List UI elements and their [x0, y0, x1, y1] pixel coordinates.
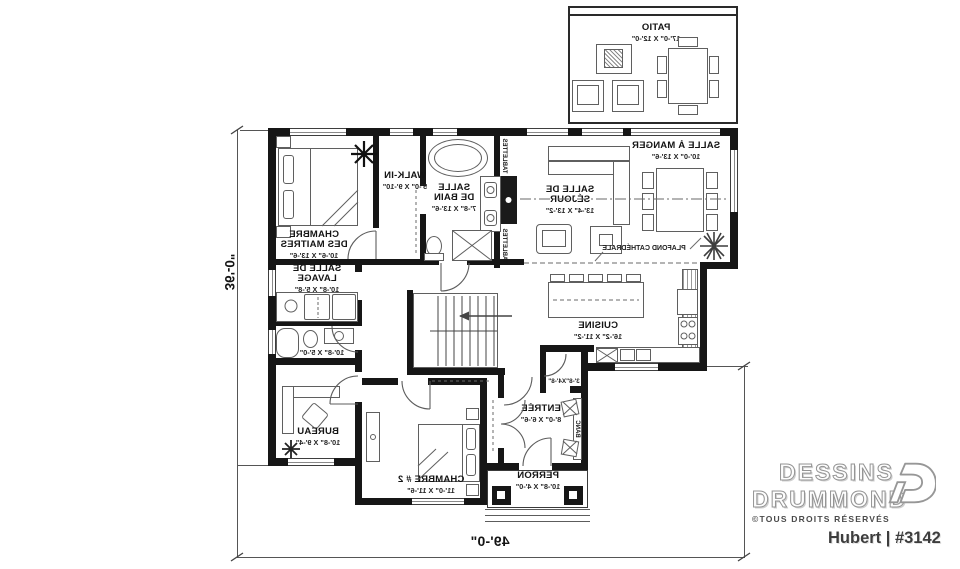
drummond-logo-icon [882, 450, 936, 516]
misc-lines [553, 238, 701, 300]
plant-icon [700, 232, 728, 260]
floor-plan-sheet: PATIO 17'-0" X 12'-0" [0, 0, 960, 569]
brand-line1: DESSINS [779, 459, 894, 486]
stairs-treads [430, 296, 497, 366]
rights-notice: ©TOUS DROITS RÉSERVÉS [752, 514, 890, 524]
dimension-ticks [231, 126, 750, 561]
fireplace-dot [506, 197, 512, 203]
plan-name: Hubert | #3142 [828, 529, 941, 548]
bureau-plant-icon [282, 440, 300, 458]
dashed-lines [318, 190, 728, 452]
bed-fold-lines [322, 190, 448, 480]
door-arcs [330, 231, 566, 466]
fixture-circles [285, 187, 695, 440]
ceiling-fan-icon [351, 141, 377, 167]
